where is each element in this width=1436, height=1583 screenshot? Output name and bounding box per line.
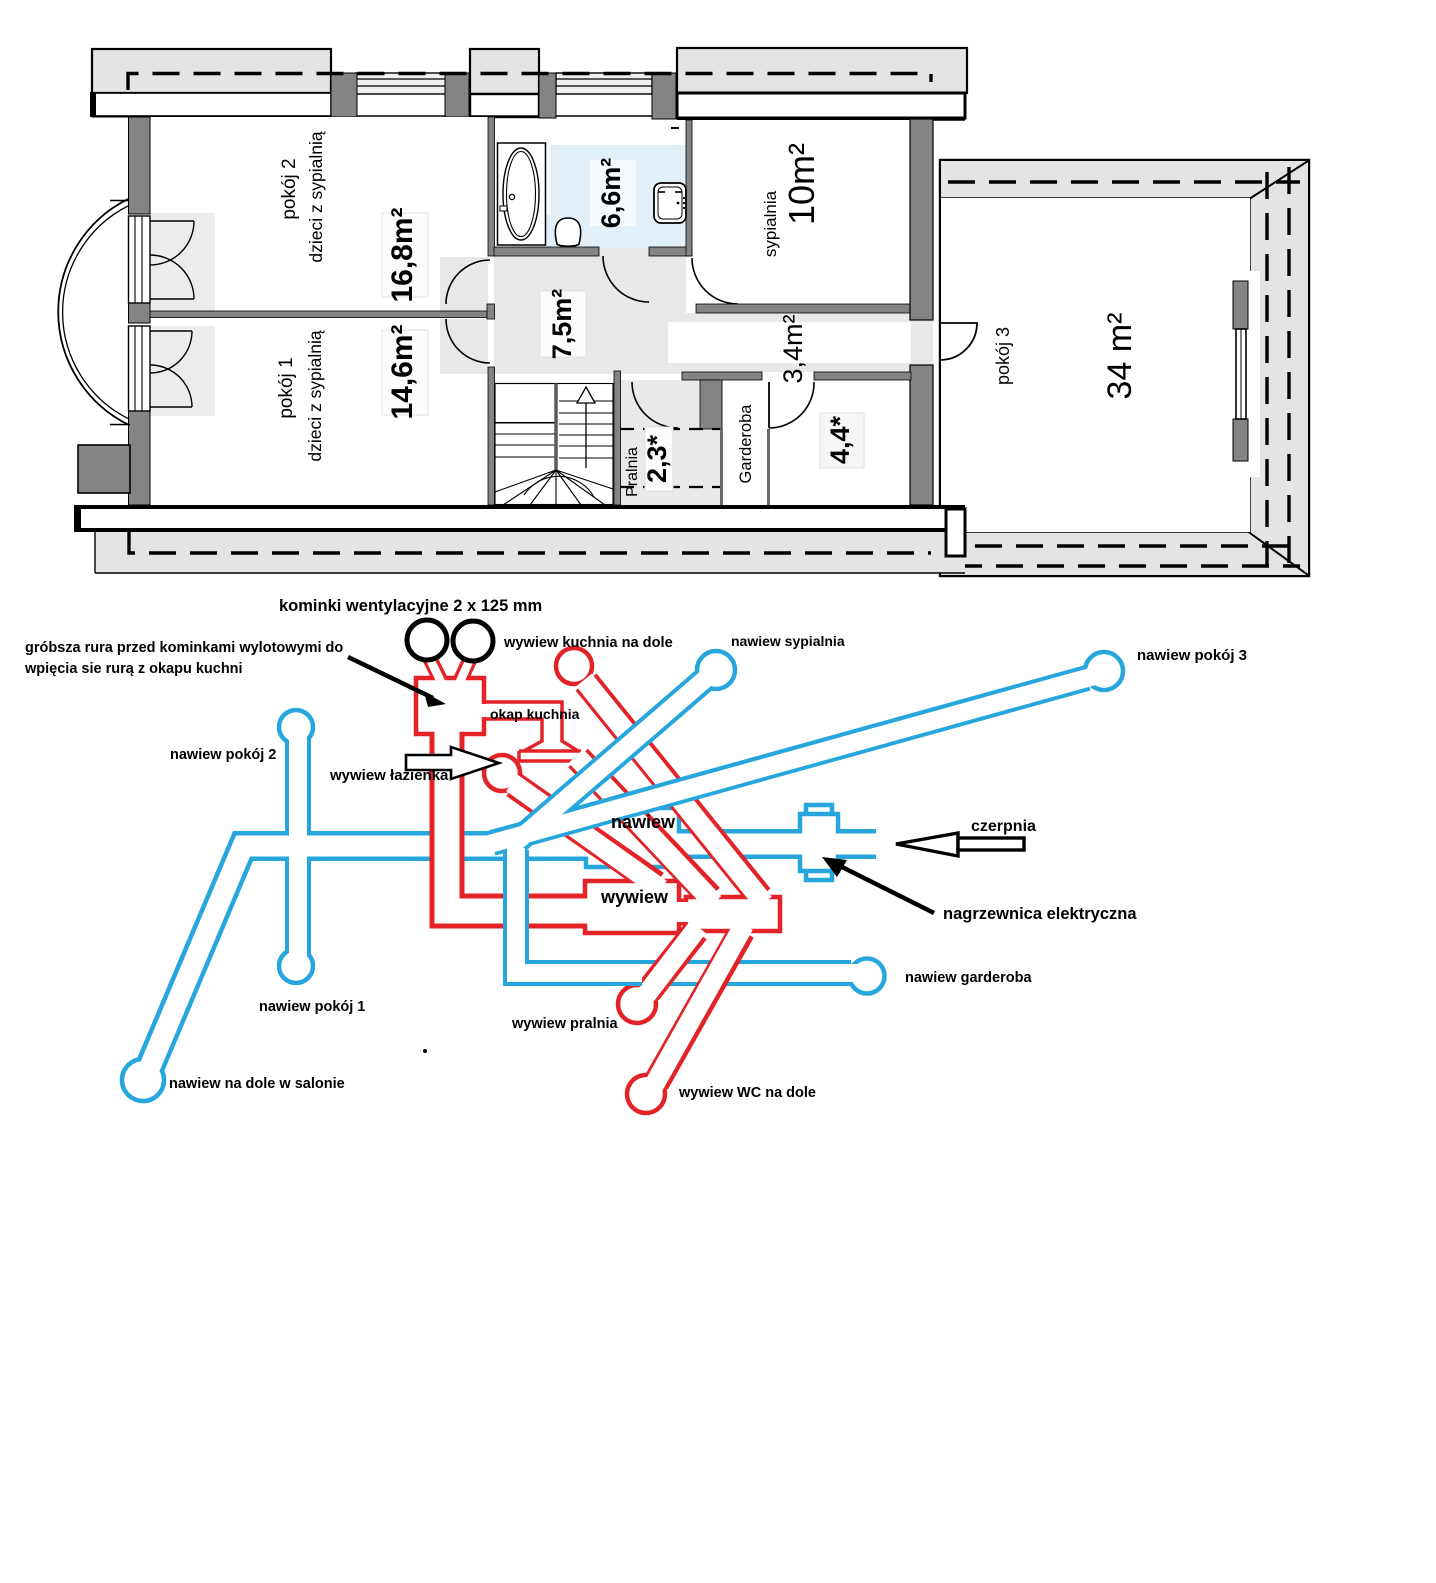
svg-text:nagrzewnica elektryczna: nagrzewnica elektryczna xyxy=(943,905,1137,923)
svg-text:pokój 1: pokój 1 xyxy=(276,357,297,418)
svg-text:wywiew łazienka: wywiew łazienka xyxy=(329,767,449,784)
svg-text:wywiew WC na dole: wywiew WC na dole xyxy=(678,1085,816,1101)
svg-text:kominki wentylacyjne 2 x 125 m: kominki wentylacyjne 2 x 125 mm xyxy=(279,597,542,615)
svg-text:2,3*: 2,3* xyxy=(642,434,672,483)
svg-text:pokój 3: pokój 3 xyxy=(993,327,1013,385)
svg-text:pokój 2: pokój 2 xyxy=(279,158,300,219)
svg-text:7,5m²: 7,5m² xyxy=(547,289,577,360)
svg-text:sypialnia: sypialnia xyxy=(761,190,780,257)
svg-text:nawiew pokój 3: nawiew pokój 3 xyxy=(1137,647,1247,664)
svg-text:6,6m²: 6,6m² xyxy=(596,158,626,229)
svg-text:dzieci z sypialnią: dzieci z sypialnią xyxy=(306,131,326,263)
svg-text:34 m²: 34 m² xyxy=(1101,313,1139,400)
svg-text:3,4m²: 3,4m² xyxy=(778,314,808,383)
svg-text:dzieci z sypialnią: dzieci z sypialnią xyxy=(305,330,325,462)
svg-text:nawiew na dole w salonie: nawiew na dole w salonie xyxy=(169,1076,345,1092)
svg-text:4,4*: 4,4* xyxy=(825,415,855,464)
svg-text:wywiew: wywiew xyxy=(600,887,669,907)
svg-text:Pralnia: Pralnia xyxy=(624,447,641,497)
svg-text:10m²: 10m² xyxy=(781,143,822,225)
svg-text:14,6m²: 14,6m² xyxy=(386,324,419,419)
svg-text:czerpnia: czerpnia xyxy=(971,818,1036,835)
svg-text:nawiew: nawiew xyxy=(611,812,676,832)
svg-text:okap kuchnia: okap kuchnia xyxy=(490,706,580,722)
svg-text:nawiew sypialnia: nawiew sypialnia xyxy=(731,633,845,649)
svg-text:nawiew pokój 2: nawiew pokój 2 xyxy=(170,747,276,763)
svg-text:Garderoba: Garderoba xyxy=(737,404,755,484)
svg-text:16,8m²: 16,8m² xyxy=(386,207,419,302)
svg-text:gróbsza rura przed kominkami w: gróbsza rura przed kominkami wylotowymi … xyxy=(25,640,343,656)
svg-text:nawiew garderoba: nawiew garderoba xyxy=(905,970,1032,986)
svg-text:wywiew kuchnia na dole: wywiew kuchnia na dole xyxy=(503,635,673,651)
svg-text:wpięcia sie rurą z okapu kuchn: wpięcia sie rurą z okapu kuchni xyxy=(24,661,243,677)
svg-text:wywiew pralnia: wywiew pralnia xyxy=(511,1016,618,1032)
svg-text:nawiew pokój 1: nawiew pokój 1 xyxy=(259,999,365,1015)
